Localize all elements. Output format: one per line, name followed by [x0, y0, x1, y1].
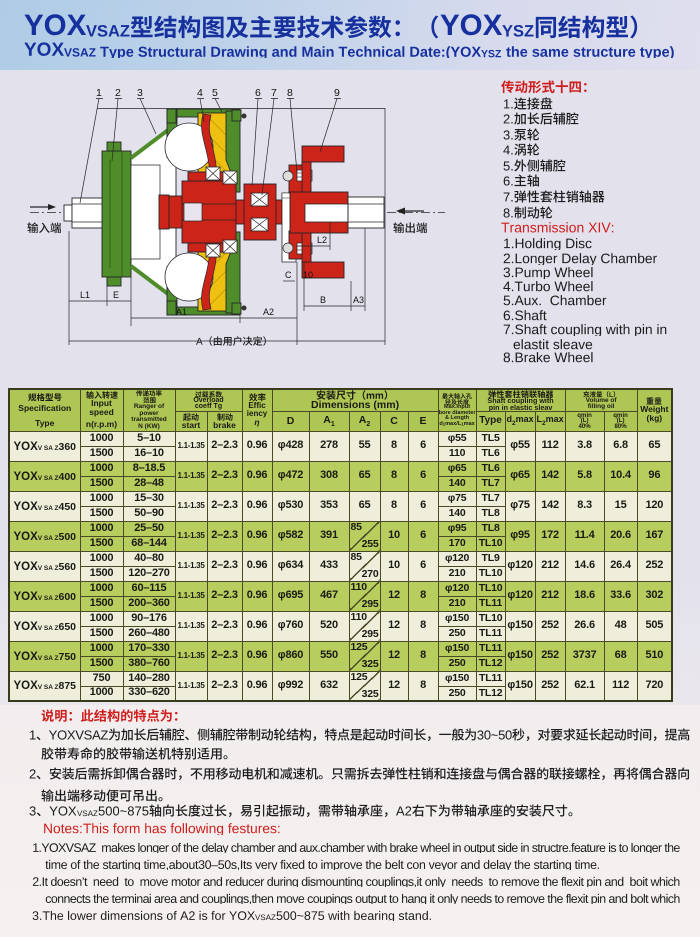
svg-text:L2: L2: [317, 235, 327, 245]
svg-text:1: 1: [96, 87, 102, 99]
svg-text:E: E: [113, 290, 119, 300]
svg-text:9: 9: [334, 87, 340, 99]
svg-text:6: 6: [255, 87, 261, 99]
svg-text:C: C: [285, 270, 292, 280]
svg-text:A2: A2: [263, 307, 274, 317]
svg-text:2: 2: [115, 87, 121, 99]
svg-text:3: 3: [137, 87, 143, 99]
svg-text:B: B: [320, 295, 326, 305]
svg-text:5: 5: [212, 87, 218, 99]
svg-text:L1: L1: [80, 290, 90, 300]
svg-text:10: 10: [303, 270, 313, 280]
svg-text:A3: A3: [353, 295, 364, 305]
svg-text:A1: A1: [176, 307, 187, 317]
svg-text:4: 4: [197, 87, 203, 99]
svg-text:7: 7: [271, 87, 277, 99]
svg-text:8: 8: [287, 87, 293, 99]
